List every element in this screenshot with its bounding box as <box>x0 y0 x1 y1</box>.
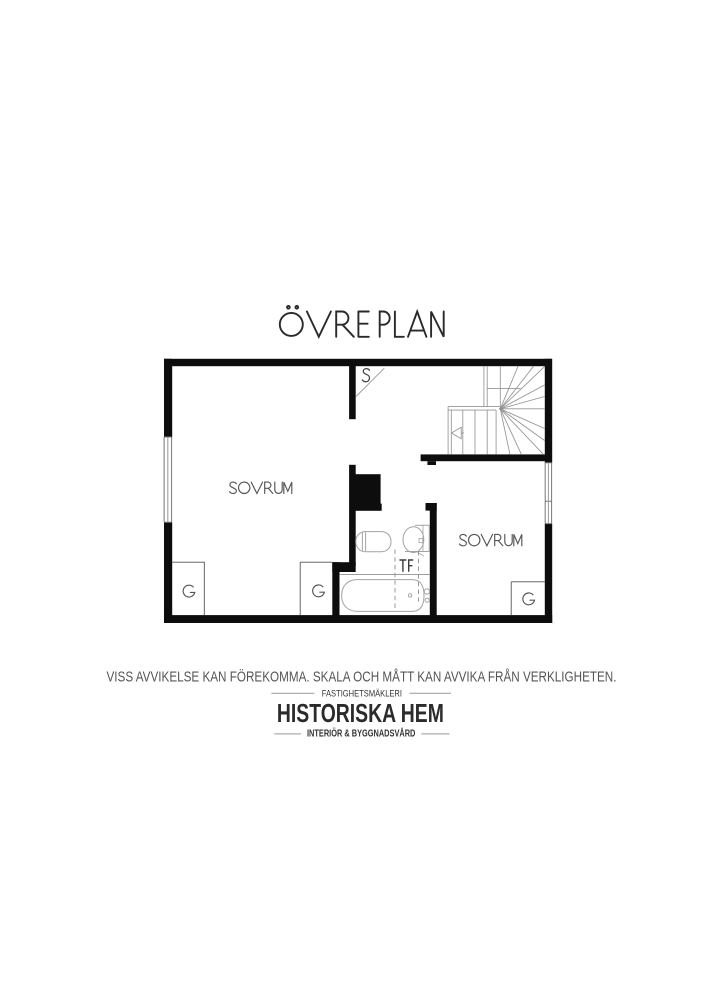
svg-text:VISS AVVIKELSE KAN FÖREKOMMA.: VISS AVVIKELSE KAN FÖREKOMMA. SKALA OCH … <box>107 668 617 686</box>
svg-text:INTERIÖR & BYGGNADSVÅRD: INTERIÖR & BYGGNADSVÅRD <box>307 727 415 740</box>
svg-text:HISTORISKA HEM: HISTORISKA HEM <box>277 698 444 728</box>
